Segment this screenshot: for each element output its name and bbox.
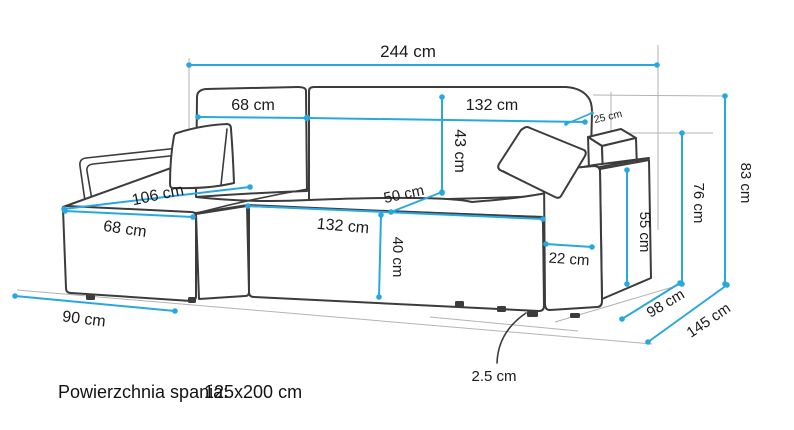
- dim-mid-height-label: 76 cm: [690, 183, 707, 224]
- dim-back-cushion-height-label: 43 cm: [451, 129, 468, 173]
- caption-label: Powierzchnia spania:: [58, 382, 228, 402]
- dim-seat-height-label: 40 cm: [389, 237, 406, 278]
- leg-leader-line: [497, 313, 526, 363]
- dim-armrest-width-label: 22 cm: [548, 250, 590, 270]
- caption-value: 125x200 cm: [204, 382, 302, 402]
- dim-leg-height-label: 2.5 cm: [471, 368, 516, 385]
- sofa-dimension-diagram: 244 cm 68 cm 132 cm 43 cm 25 cm 106 cm 5…: [0, 0, 794, 430]
- diagram-canvas: 244 cm 68 cm 132 cm 43 cm 25 cm 106 cm 5…: [0, 0, 794, 430]
- dim-back-right-width-label: 132 cm: [466, 97, 518, 114]
- chaise-front-face: [63, 206, 196, 301]
- dim-total-depth-label: 145 cm: [684, 300, 734, 342]
- dim-armrest-height-label: 55 cm: [636, 212, 653, 253]
- dim-back-top-depth-label: 25 cm: [593, 108, 624, 126]
- dim-back-left-width-label: 68 cm: [231, 97, 275, 114]
- chaise-side-face: [196, 206, 249, 299]
- caption: Powierzchnia spania: 125x200 cm: [58, 382, 302, 402]
- dim-chaise-side-depth-label: 90 cm: [61, 308, 106, 330]
- dim-total-height-label: 83 cm: [737, 163, 754, 204]
- dim-total-width-label: 244 cm: [380, 42, 436, 61]
